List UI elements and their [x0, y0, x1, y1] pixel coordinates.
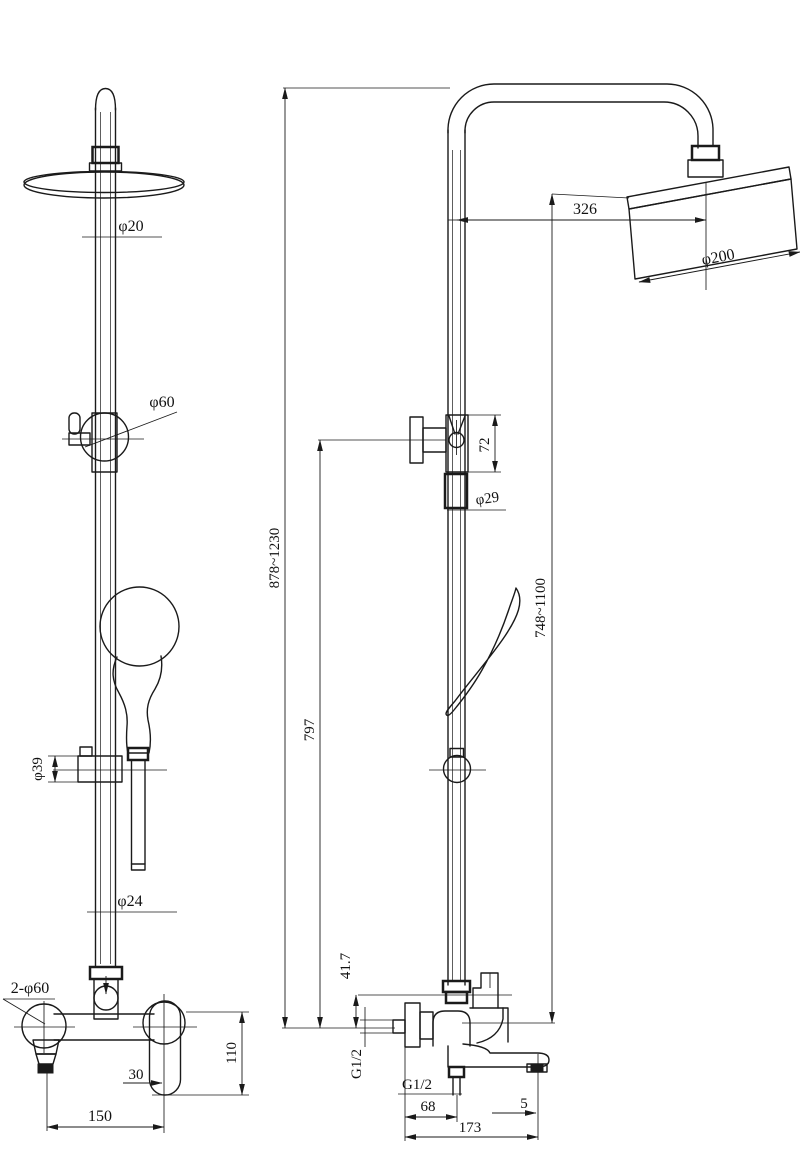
dim-head-height: 748~1100 [533, 578, 549, 638]
technical-drawing-page: φ20 φ60 φ39 φ24 [0, 0, 800, 1159]
dim-wall-flanges: 2-φ60 [11, 980, 50, 997]
dim-bracket-diameter: φ60 [149, 394, 174, 411]
riser-pipe-side [448, 84, 713, 985]
ext-head-height-top [552, 194, 629, 198]
dim-spout-reach: 173 [459, 1120, 482, 1136]
dim-handle-offset: 30 [129, 1067, 144, 1083]
dim-head-offset: 326 [573, 201, 597, 218]
dim-body-drop: 41.7 [338, 952, 354, 979]
overhead-shower-front [24, 147, 184, 198]
rod-connector-front [90, 967, 122, 1019]
dim-bracket-height: 72 [477, 438, 493, 453]
hand-shower-front [100, 587, 179, 753]
dim-handle-height: 110 [224, 1042, 240, 1064]
dim-wall-inlet-thread: G1/2 [349, 1049, 365, 1079]
dim-spout-tip-offset: 5 [520, 1096, 528, 1112]
mixer-body-side [393, 973, 549, 1140]
drawing-canvas: φ20 φ60 φ39 φ24 [0, 0, 800, 1159]
slider-bracket-front [62, 413, 144, 472]
front-view: φ20 φ60 φ39 φ24 [3, 89, 249, 1134]
lower-bracket-side [429, 749, 486, 783]
head-connector-side [688, 146, 723, 177]
dim-rod-bottom-diameter: φ24 [117, 893, 142, 910]
leader-wall-flanges [3, 999, 45, 1024]
lever-handle-front [150, 1001, 181, 1095]
dim-outlet-offset: 68 [421, 1099, 436, 1115]
dim-holder-diameter: φ39 [30, 757, 46, 781]
dim-pipe-diameter: φ29 [475, 489, 501, 508]
riser-rod-front [96, 89, 116, 968]
cartridge-dome-side [433, 1011, 470, 1046]
lever-handle-side [473, 973, 498, 1008]
dim-hose-outlet-thread: G1/2 [402, 1077, 432, 1093]
dim-inlet-distance: 150 [88, 1108, 112, 1125]
overhead-shower-side [627, 167, 797, 290]
dim-riser-height: 797 [302, 718, 318, 741]
slider-bracket-side [318, 415, 468, 508]
hose-outlet-side [449, 1067, 464, 1077]
wall-inlet-stub [393, 1020, 405, 1033]
dim-overall-height: 878~1230 [267, 528, 283, 589]
dim-rod-top-diameter: φ20 [118, 218, 143, 235]
wall-escutcheon-side [405, 1003, 420, 1047]
leader-bracket-diameter [85, 412, 177, 447]
shower-holder-front [53, 747, 167, 870]
side-view: 326 φ200 878~1230 797 748~1100 [267, 84, 800, 1141]
hand-shower-side [446, 588, 520, 715]
